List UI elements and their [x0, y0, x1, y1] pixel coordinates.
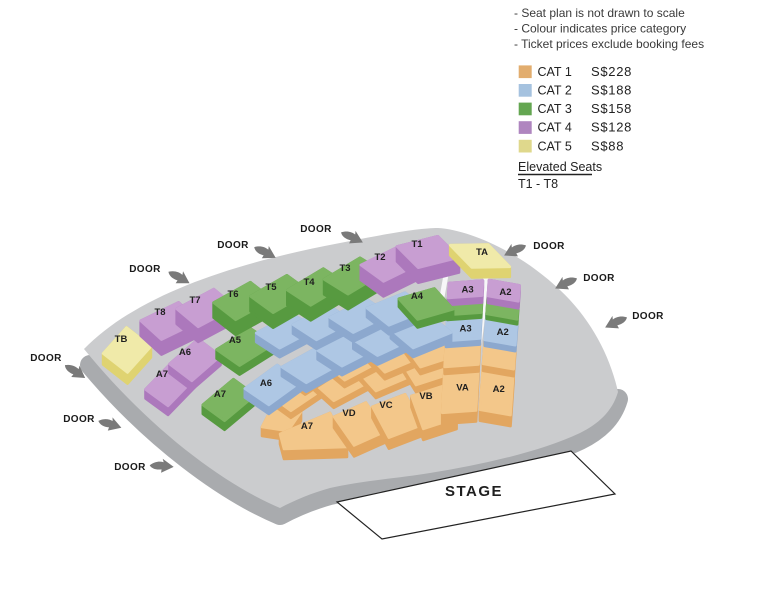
svg-text:S$88: S$88 [591, 138, 624, 153]
svg-text:CAT 1: CAT 1 [538, 65, 572, 79]
svg-text:TA: TA [476, 247, 488, 258]
svg-text:VC: VC [379, 400, 392, 411]
svg-text:T6: T6 [227, 289, 238, 300]
svg-text:T1 - T8: T1 - T8 [518, 177, 558, 191]
svg-text:DOOR: DOOR [63, 414, 95, 425]
svg-text:- Seat plan is not drawn to sc: - Seat plan is not drawn to scale [514, 6, 685, 20]
svg-text:S$158: S$158 [591, 101, 632, 116]
svg-text:DOOR: DOOR [129, 264, 161, 275]
svg-text:CAT 5: CAT 5 [538, 139, 572, 153]
svg-text:A3: A3 [459, 324, 471, 335]
svg-text:- Ticket prices exclude bookin: - Ticket prices exclude booking fees [514, 37, 704, 51]
svg-text:Elevated Seats: Elevated Seats [518, 160, 602, 174]
svg-text:DOOR: DOOR [300, 224, 332, 235]
svg-text:- Colour indicates price categ: - Colour indicates price category [514, 21, 686, 35]
svg-text:DOOR: DOOR [30, 353, 62, 364]
svg-text:A6: A6 [260, 378, 272, 389]
svg-text:T8: T8 [154, 307, 165, 318]
svg-text:DOOR: DOOR [533, 241, 565, 252]
svg-text:CAT 2: CAT 2 [538, 84, 572, 98]
svg-text:CAT 4: CAT 4 [538, 121, 572, 135]
svg-text:A5: A5 [229, 335, 242, 346]
svg-text:VD: VD [342, 408, 355, 419]
svg-text:S$128: S$128 [591, 120, 632, 135]
svg-text:S$228: S$228 [591, 64, 632, 79]
svg-text:T2: T2 [374, 252, 385, 263]
svg-text:STAGE: STAGE [445, 483, 503, 500]
svg-text:DOOR: DOOR [632, 311, 664, 322]
svg-text:A7: A7 [214, 389, 226, 400]
svg-text:A6: A6 [179, 347, 191, 358]
svg-text:VB: VB [419, 391, 432, 402]
svg-text:A2: A2 [493, 384, 505, 395]
svg-text:A2: A2 [499, 287, 511, 298]
svg-text:S$188: S$188 [591, 83, 632, 98]
svg-text:T7: T7 [189, 295, 200, 306]
svg-text:A7: A7 [156, 369, 168, 380]
svg-text:T5: T5 [265, 282, 277, 293]
svg-text:TB: TB [115, 334, 128, 345]
svg-text:A7: A7 [301, 421, 313, 432]
svg-text:A3: A3 [461, 285, 473, 296]
svg-text:T4: T4 [303, 277, 315, 288]
svg-text:DOOR: DOOR [583, 273, 615, 284]
svg-text:VA: VA [456, 383, 469, 394]
svg-text:A2: A2 [497, 327, 509, 338]
svg-text:T1: T1 [411, 239, 423, 250]
svg-text:DOOR: DOOR [217, 240, 249, 251]
svg-text:T3: T3 [339, 263, 350, 274]
svg-text:CAT 3: CAT 3 [538, 102, 572, 116]
svg-text:DOOR: DOOR [114, 462, 146, 473]
svg-text:A4: A4 [411, 291, 424, 302]
